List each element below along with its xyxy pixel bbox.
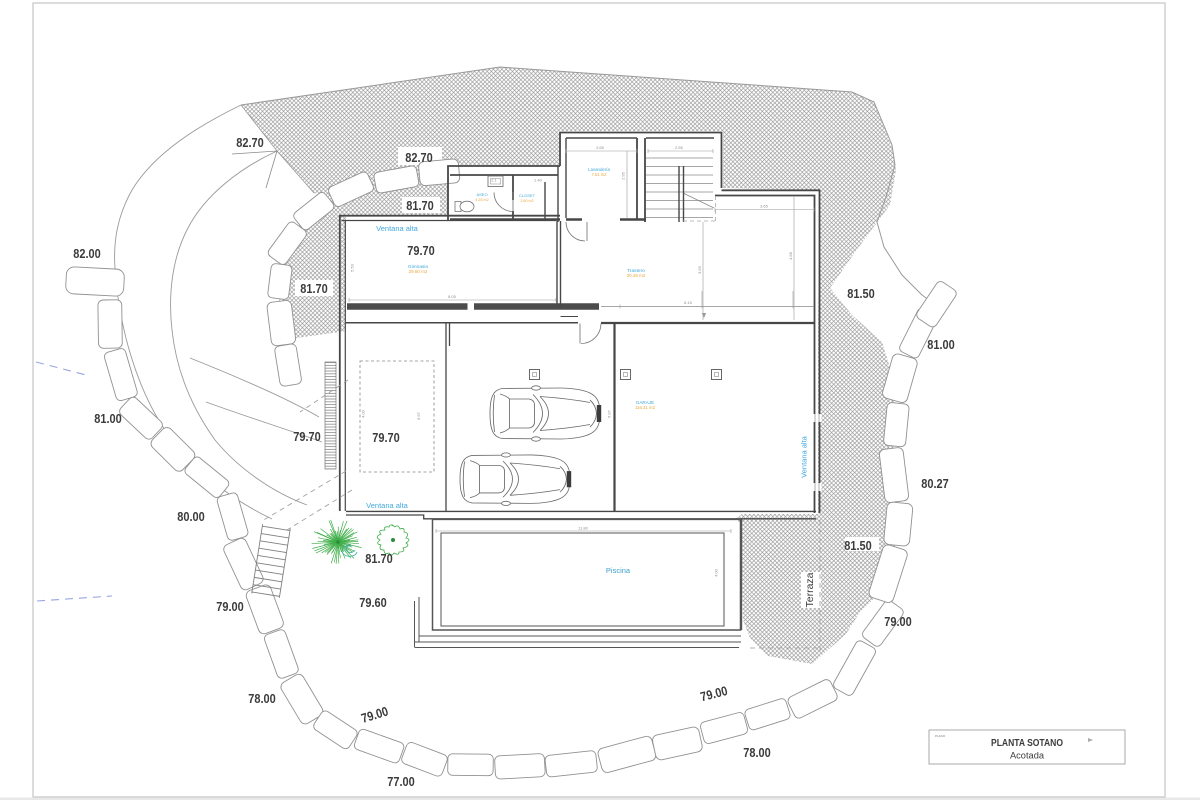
svg-text:ASEO: ASEO — [476, 192, 487, 197]
svg-text:78.00: 78.00 — [743, 745, 771, 760]
svg-text:1.40: 1.40 — [534, 178, 543, 183]
svg-text:2.65: 2.65 — [596, 145, 605, 150]
svg-text:79.00: 79.00 — [884, 614, 912, 629]
svg-text:2.55: 2.55 — [675, 145, 684, 150]
svg-text:4.00: 4.00 — [361, 409, 366, 418]
svg-text:82.00: 82.00 — [73, 246, 101, 261]
svg-text:79.00: 79.00 — [216, 599, 244, 614]
svg-text:81.50: 81.50 — [844, 538, 872, 553]
svg-text:82.70: 82.70 — [405, 150, 433, 165]
svg-text:3.59: 3.59 — [697, 265, 702, 274]
svg-text:PLANTA SOTANO: PLANTA SOTANO — [991, 738, 1063, 749]
svg-text:Terraza: Terraza — [804, 572, 816, 607]
svg-text:6.97: 6.97 — [416, 411, 421, 420]
svg-text:2.1: 2.1 — [491, 178, 497, 183]
svg-text:80.00: 80.00 — [177, 509, 205, 524]
svg-text:4.00: 4.00 — [714, 568, 719, 577]
svg-text:79.70: 79.70 — [372, 430, 400, 445]
svg-text:79.70: 79.70 — [407, 243, 435, 258]
svg-text:81.70: 81.70 — [365, 551, 393, 566]
svg-text:CLOSET: CLOSET — [519, 193, 536, 198]
svg-text:Ventana alta: Ventana alta — [376, 224, 419, 233]
svg-text:77.00: 77.00 — [387, 774, 415, 789]
svg-text:Piscina: Piscina — [606, 566, 631, 575]
svg-text:Ventana alta: Ventana alta — [800, 435, 809, 478]
svg-text:80.27: 80.27 — [921, 476, 949, 491]
svg-text:30.49 m2: 30.49 m2 — [627, 273, 646, 278]
svg-text:6.15: 6.15 — [684, 300, 693, 305]
svg-text:2.60 m2: 2.60 m2 — [520, 199, 533, 203]
svg-text:11.80: 11.80 — [578, 526, 588, 531]
svg-text:116.31 m2: 116.31 m2 — [635, 405, 656, 410]
svg-text:3.65: 3.65 — [760, 204, 769, 209]
svg-text:81.70: 81.70 — [406, 198, 434, 213]
svg-text:82.70: 82.70 — [236, 135, 264, 150]
svg-text:81.00: 81.00 — [927, 337, 955, 352]
svg-text:81.70: 81.70 — [300, 281, 328, 296]
svg-text:78.00: 78.00 — [248, 691, 276, 706]
svg-text:4.25 m2: 4.25 m2 — [475, 198, 488, 202]
svg-text:5.50: 5.50 — [350, 263, 355, 272]
svg-text:81.00: 81.00 — [94, 411, 122, 426]
svg-text:7.51 m2: 7.51 m2 — [592, 172, 608, 177]
svg-text:2.95: 2.95 — [621, 171, 626, 180]
svg-text:Ventana alta: Ventana alta — [366, 501, 409, 510]
svg-text:29.60 m2: 29.60 m2 — [409, 269, 428, 274]
svg-text:6.97: 6.97 — [607, 409, 612, 418]
svg-text:8.05: 8.05 — [448, 294, 457, 299]
svg-text:Acotada: Acotada — [1010, 751, 1044, 761]
svg-text:PLANO: PLANO — [935, 734, 946, 738]
svg-text:79.60: 79.60 — [359, 595, 387, 610]
svg-text:4.58: 4.58 — [788, 251, 793, 260]
svg-text:79.70: 79.70 — [293, 429, 321, 444]
svg-text:81.50: 81.50 — [847, 286, 875, 301]
